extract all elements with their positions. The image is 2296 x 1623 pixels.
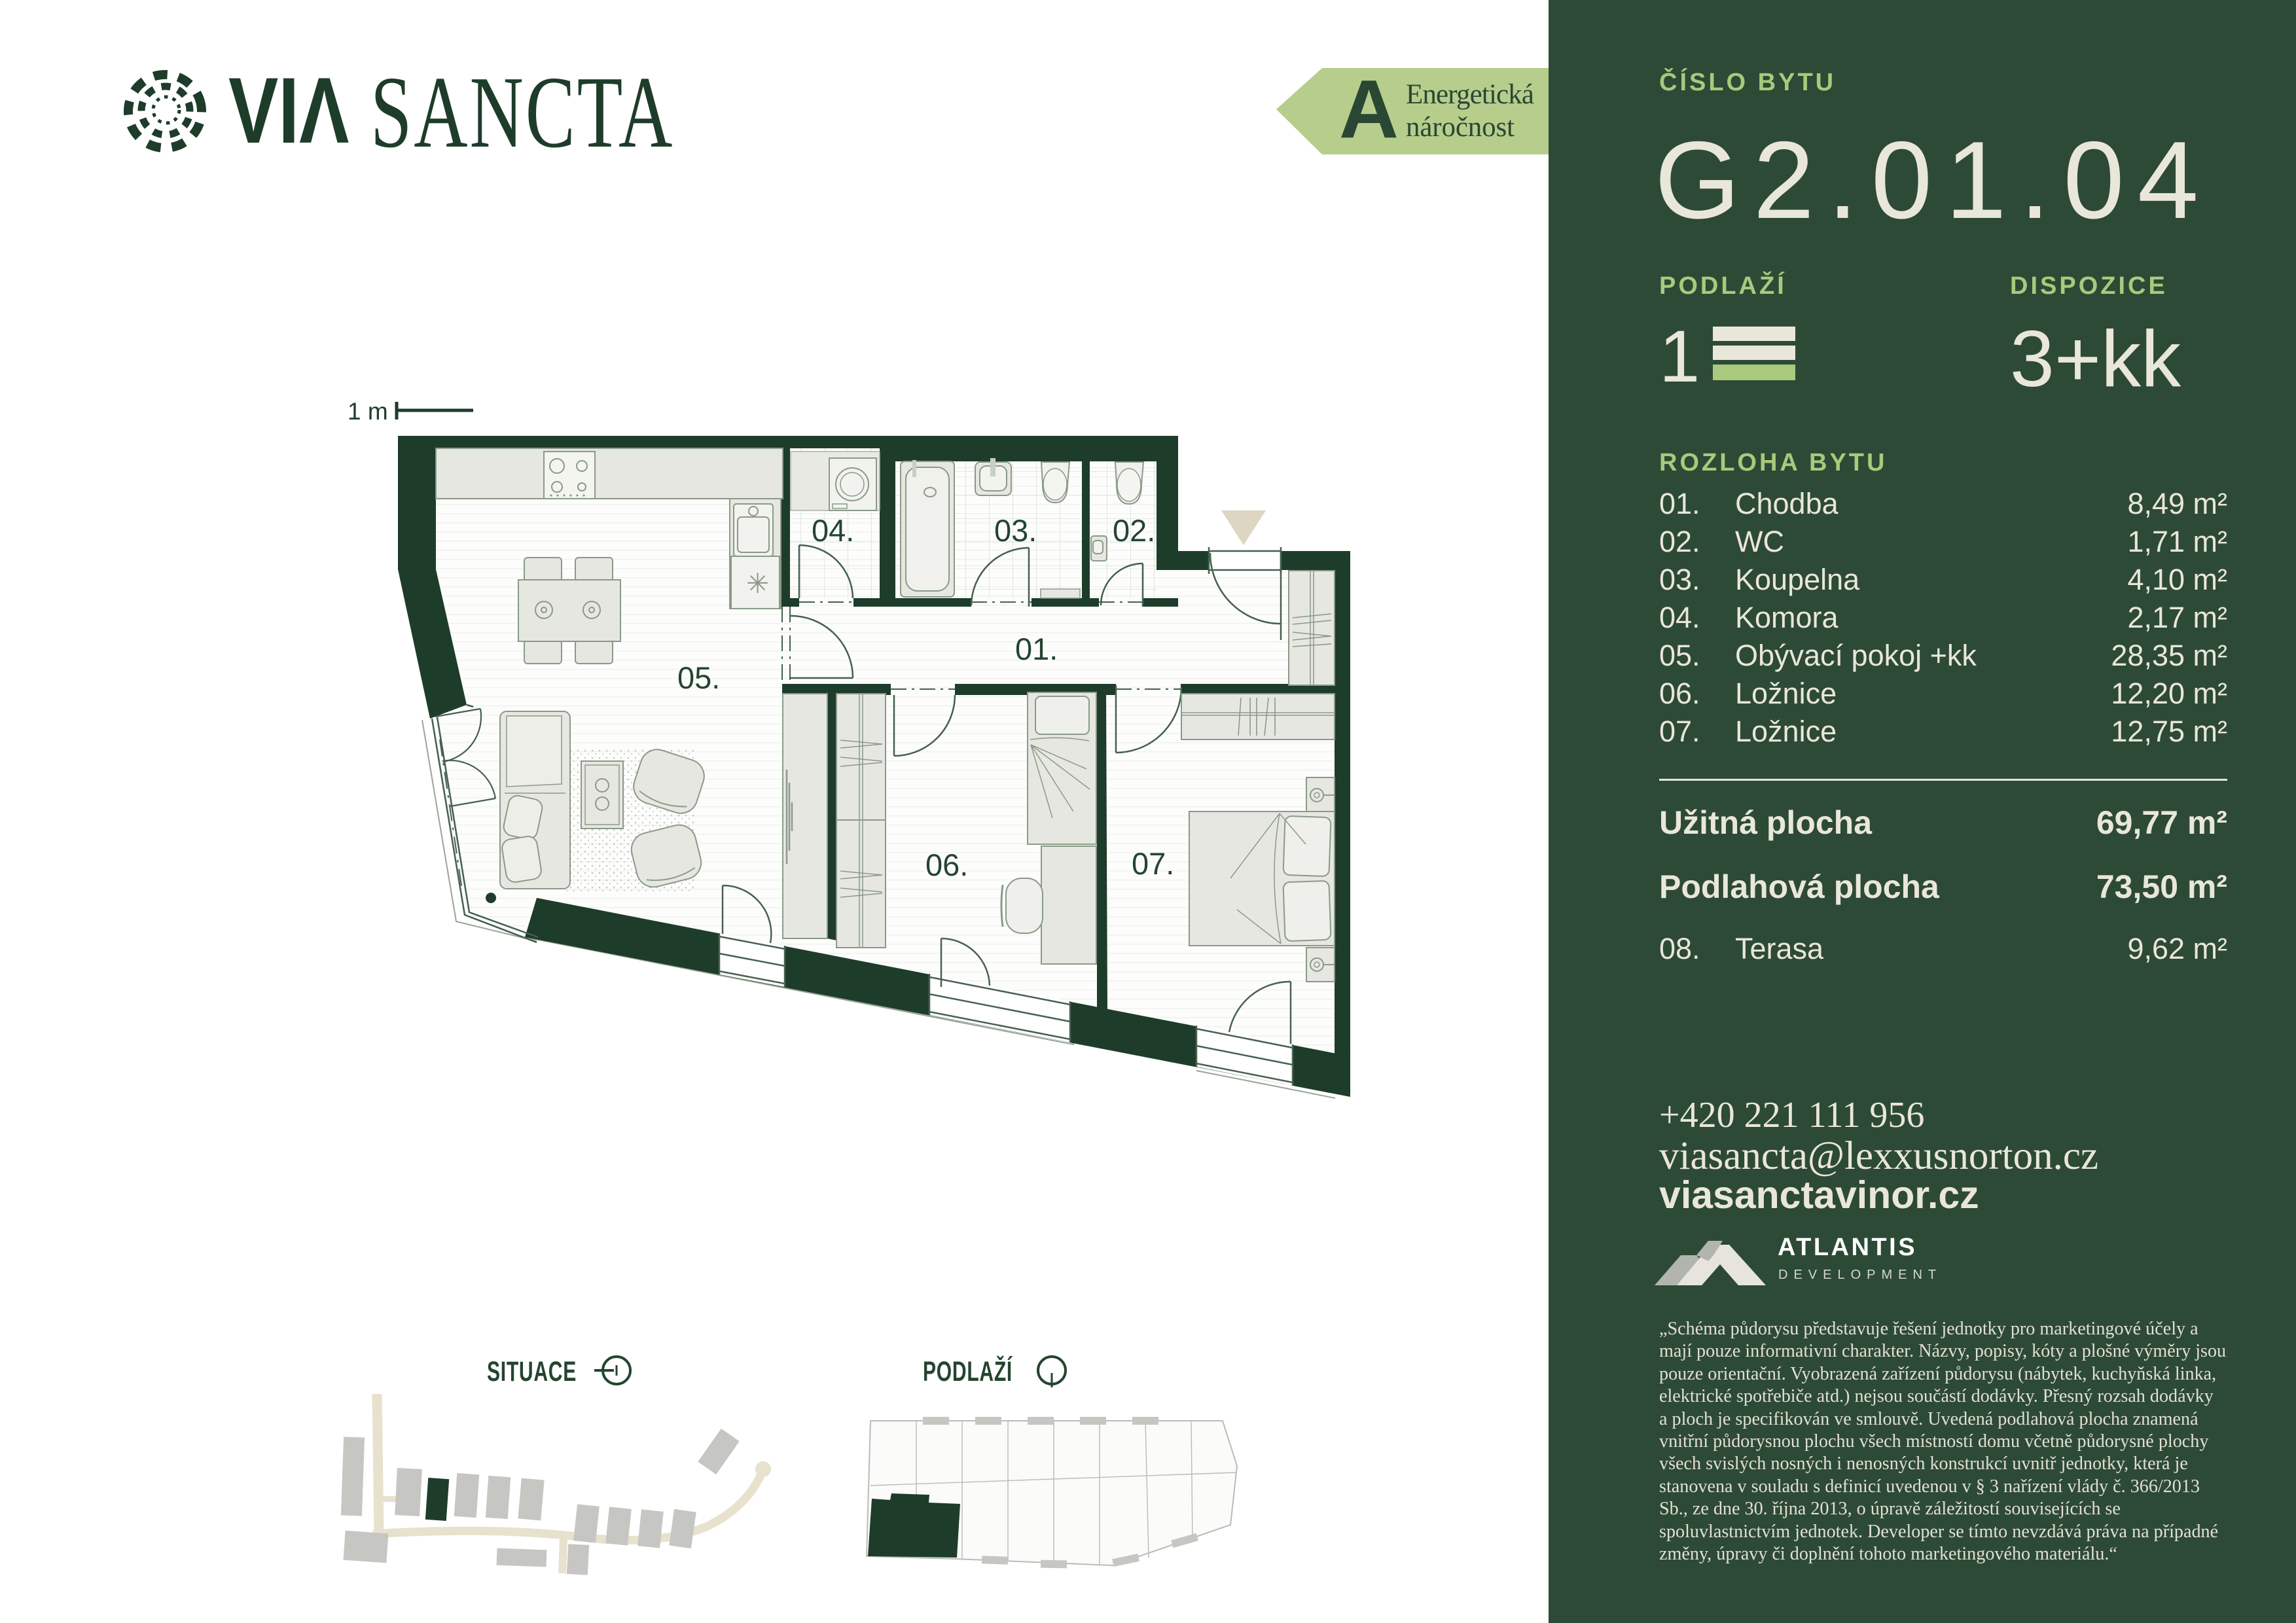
svg-text:05.: 05. — [677, 660, 720, 695]
svg-text:07.: 07. — [1132, 846, 1174, 881]
svg-text:02.: 02. — [1113, 513, 1155, 548]
svg-text:✳: ✳ — [746, 568, 769, 599]
svg-text:03.: 03. — [994, 513, 1037, 548]
svg-text:PODLAŽÍ: PODLAŽÍ — [923, 1355, 1013, 1387]
svg-text:04.: 04. — [812, 513, 854, 548]
svg-text:SITUACE: SITUACE — [487, 1355, 577, 1387]
svg-text:1 m: 1 m — [348, 398, 388, 425]
svg-text:01.: 01. — [1015, 632, 1058, 666]
svg-text:06.: 06. — [925, 847, 968, 882]
